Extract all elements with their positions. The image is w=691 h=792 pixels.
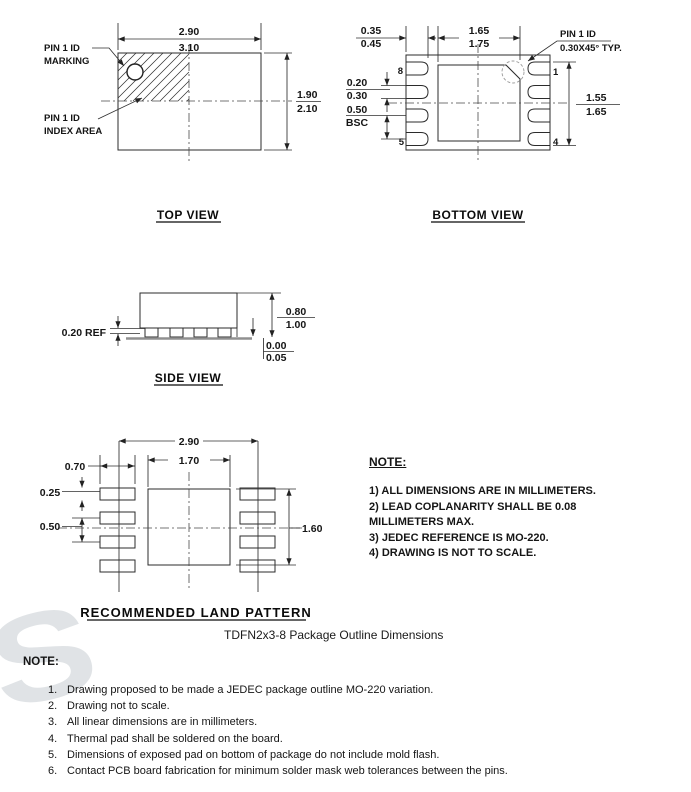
bv-epad-height-lower: 1.65	[586, 106, 607, 118]
footer-note-number: 4.	[48, 731, 67, 747]
drawing-note-line: 4) DRAWING IS NOT TO SCALE.	[369, 546, 649, 562]
bv-pitch-lower: BSC	[346, 117, 369, 129]
top-view-drawing: 2.90 3.10 1.90 2.10 PIN 1 ID MARKING PIN…	[44, 23, 321, 222]
lp-height: 1.60	[302, 523, 323, 535]
footer-note-item: 1. Drawing proposed to be made a JEDEC p…	[48, 682, 508, 698]
package-outline-drawing: 2.90 3.10 1.90 2.10 PIN 1 ID MARKING PIN…	[0, 0, 691, 792]
top-width-upper: 2.90	[179, 26, 200, 38]
top-height-lower: 2.10	[297, 103, 318, 115]
side-view-drawing: 0.20 REF 0.80 1.00 0.00 0.05 SIDE VIEW	[62, 293, 315, 385]
footer-note-number: 1.	[48, 682, 67, 698]
pin1-marking-dot	[127, 64, 143, 80]
top-width-lower: 3.10	[179, 42, 200, 54]
drawing-note-line: 3) JEDEC REFERENCE IS MO-220.	[369, 531, 649, 547]
pin-8: 8	[398, 66, 403, 77]
footer-note-item: 3. All linear dimensions are in millimet…	[48, 714, 508, 730]
page-title: TDFN2x3-8 Package Outline Dimensions	[224, 628, 443, 642]
footer-note-item: 6. Contact PCB board fabrication for min…	[48, 763, 508, 779]
lp-span: 2.90	[179, 436, 200, 448]
footer-note-number: 3.	[48, 714, 67, 730]
sv-standoff-upper: 0.00	[266, 340, 287, 352]
pin1-index-label-1: PIN 1 ID	[44, 113, 80, 124]
lp-epad-width: 1.70	[179, 455, 200, 467]
bottom-view-title: BOTTOM VIEW	[432, 208, 523, 222]
pin1-index-label-2: INDEX AREA	[44, 126, 102, 137]
pin1-marking-label-1: PIN 1 ID	[44, 43, 80, 54]
footer-note-item: 5. Dimensions of exposed pad on bottom o…	[48, 747, 508, 763]
footer-note-text: All linear dimensions are in millimeters…	[67, 714, 257, 730]
footer-note-item: 2. Drawing not to scale.	[48, 698, 508, 714]
footer-note-text: Drawing not to scale.	[67, 698, 170, 714]
sv-height-upper: 0.80	[286, 306, 307, 318]
footer-note-number: 6.	[48, 763, 67, 779]
sv-standoff-lower: 0.05	[266, 352, 287, 364]
side-view-title: SIDE VIEW	[155, 371, 222, 385]
footer-note-number: 2.	[48, 698, 67, 714]
bv-epad-height-upper: 1.55	[586, 92, 607, 104]
land-pattern-title: RECOMMENDED LAND PATTERN	[80, 605, 312, 620]
pin1-marking-label-2: MARKING	[44, 56, 89, 67]
top-height-upper: 1.90	[297, 89, 318, 101]
bv-epad-width-upper: 1.65	[469, 25, 490, 37]
footer-note-item: 4. Thermal pad shall be soldered on the …	[48, 731, 508, 747]
bv-lead-length-upper: 0.35	[361, 25, 382, 37]
bv-pin1-label-1: PIN 1 ID	[560, 29, 596, 40]
top-view-title: TOP VIEW	[157, 208, 219, 222]
bottom-view-drawing: 0.35 0.45 1.65 1.75 0.20 0.30 0.50 BSC	[346, 25, 622, 222]
footer-note-number: 5.	[48, 747, 67, 763]
bv-epad-width-lower: 1.75	[469, 38, 490, 50]
sv-height-lower: 1.00	[286, 319, 307, 331]
lp-pitch: 0.50	[40, 521, 61, 533]
drawing-note-heading: NOTE:	[369, 455, 649, 469]
drawing-note-line: 1) ALL DIMENSIONS ARE IN MILLIMETERS.	[369, 484, 649, 500]
bv-lead-width-lower: 0.30	[347, 90, 368, 102]
lp-pad-width: 0.25	[40, 487, 61, 499]
bv-lead-length-lower: 0.45	[361, 38, 382, 50]
pin-5: 5	[399, 137, 405, 148]
datasheet-page: S 2.90 3.10 1.90 2.10	[0, 0, 691, 792]
pin-4: 4	[553, 137, 559, 148]
drawing-note-line: MILLIMETERS MAX.	[369, 515, 649, 531]
bv-pitch-upper: 0.50	[347, 104, 368, 116]
footer-note-heading: NOTE:	[23, 656, 59, 668]
bv-pin1-label-2: 0.30X45° TYP.	[560, 43, 622, 54]
footer-note-text: Drawing proposed to be made a JEDEC pack…	[67, 682, 433, 698]
pin-1: 1	[553, 67, 559, 78]
footer-note-list: 1. Drawing proposed to be made a JEDEC p…	[48, 682, 508, 779]
drawing-note-line: 2) LEAD COPLANARITY SHALL BE 0.08	[369, 500, 649, 516]
bv-lead-width-upper: 0.20	[347, 77, 368, 89]
footer-note-text: Thermal pad shall be soldered on the boa…	[67, 731, 283, 747]
footer-note-text: Dimensions of exposed pad on bottom of p…	[67, 747, 439, 763]
lp-pad-length: 0.70	[65, 461, 86, 473]
sv-lead-thickness: 0.20 REF	[62, 327, 107, 339]
footer-note-text: Contact PCB board fabrication for minimu…	[67, 763, 508, 779]
drawing-note-block: NOTE: 1) ALL DIMENSIONS ARE IN MILLIMETE…	[369, 455, 649, 562]
land-pattern-drawing: 2.90 1.70 0.70 0.25 0.50 1.60 R	[40, 436, 323, 620]
